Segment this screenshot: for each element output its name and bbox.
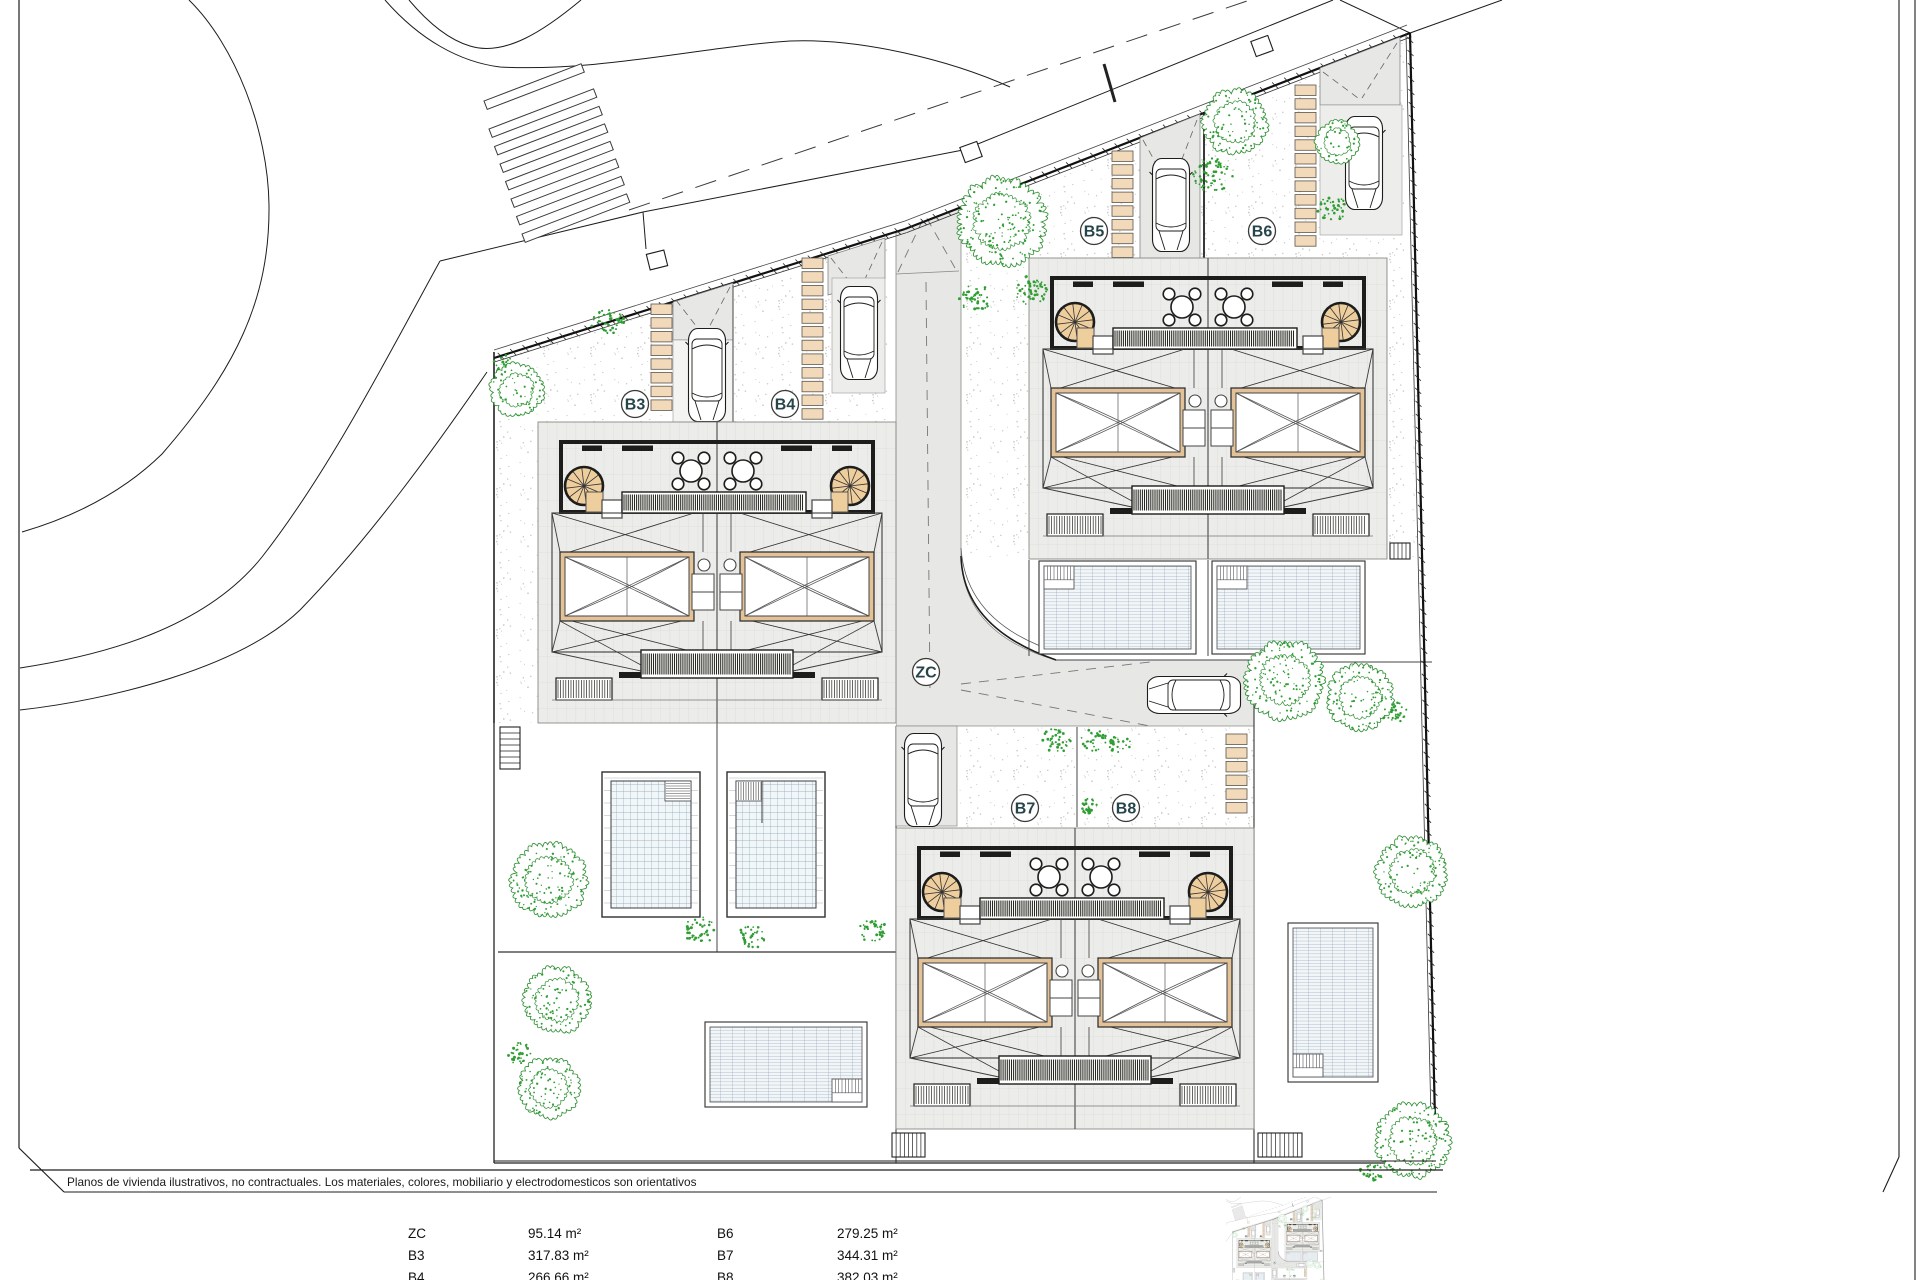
svg-text:344.31 m²: 344.31 m² (837, 1248, 898, 1263)
svg-text:382.03 m²: 382.03 m² (837, 1270, 898, 1280)
svg-text:B8: B8 (1116, 801, 1137, 818)
svg-text:B3: B3 (625, 397, 646, 414)
svg-text:ZC: ZC (915, 665, 937, 682)
svg-text:B7: B7 (1015, 801, 1036, 818)
svg-text:B8: B8 (717, 1270, 734, 1280)
svg-text:Planos de vivienda ilustrativo: Planos de vivienda ilustrativos, no cont… (67, 1175, 697, 1189)
svg-text:B4: B4 (408, 1270, 425, 1280)
svg-text:B5: B5 (1084, 224, 1105, 241)
svg-text:317.83 m²: 317.83 m² (528, 1248, 589, 1263)
svg-text:266.66 m²: 266.66 m² (528, 1270, 589, 1280)
svg-text:B3: B3 (408, 1248, 425, 1263)
svg-text:95.14 m²: 95.14 m² (528, 1226, 582, 1241)
svg-text:B7: B7 (717, 1248, 734, 1263)
svg-text:B4: B4 (775, 397, 796, 414)
svg-text:B6: B6 (717, 1226, 734, 1241)
svg-text:ZC: ZC (408, 1226, 426, 1241)
svg-text:B6: B6 (1252, 224, 1273, 241)
svg-text:279.25 m²: 279.25 m² (837, 1226, 898, 1241)
